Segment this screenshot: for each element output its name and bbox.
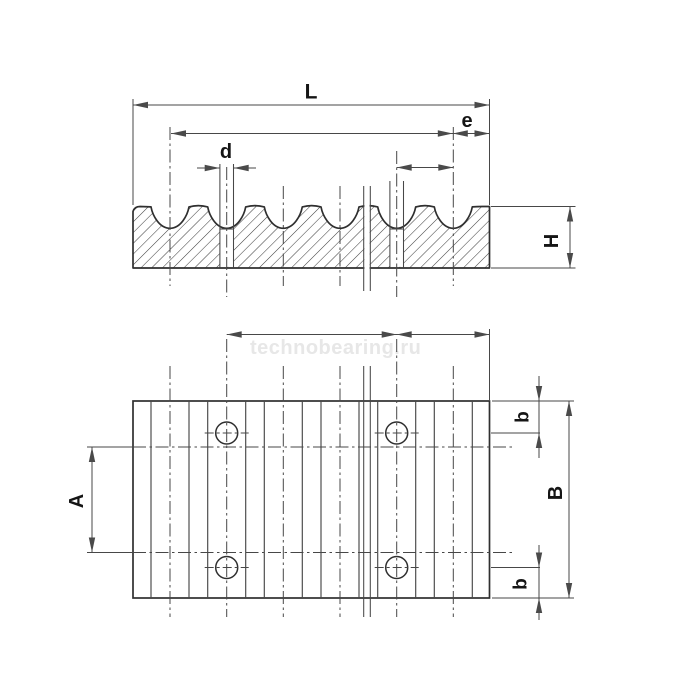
arrowhead	[536, 553, 542, 568]
dim-label-e: e	[461, 110, 472, 132]
arrowhead	[438, 164, 453, 170]
dim-label-H: H	[541, 234, 563, 248]
arrowhead	[89, 538, 95, 553]
belt-clamp-plate-drawing: LedHABbb	[0, 0, 700, 700]
arrowhead	[397, 164, 412, 170]
arrowhead	[566, 401, 572, 416]
section-view	[133, 127, 490, 297]
arrowhead	[567, 207, 573, 222]
plate-outline	[133, 401, 490, 598]
technical-drawing-page: technobearing.ru LedHABbb	[0, 0, 700, 700]
dim-label-d: d	[220, 141, 232, 163]
arrowhead	[536, 386, 542, 401]
dim-label-b_bottom: b	[511, 578, 532, 590]
break-gap	[364, 196, 369, 291]
arrowhead	[475, 130, 490, 136]
arrowhead	[438, 130, 453, 136]
arrowhead	[234, 165, 249, 171]
dim-label-b_top: b	[513, 411, 534, 423]
dim-label-A: A	[66, 494, 88, 508]
arrowhead	[475, 331, 490, 337]
arrowhead	[567, 253, 573, 268]
dim-label-L: L	[305, 81, 318, 104]
arrowhead	[205, 165, 220, 171]
arrowhead	[171, 130, 186, 136]
arrowhead	[227, 331, 242, 337]
arrowhead	[536, 433, 542, 448]
arrowhead	[536, 598, 542, 613]
arrowhead	[382, 331, 397, 337]
arrowhead	[475, 102, 490, 108]
dim-label-B: B	[545, 486, 567, 500]
arrowhead	[89, 447, 95, 462]
tooth-profile	[133, 206, 490, 268]
arrowhead	[133, 102, 148, 108]
arrowhead	[566, 583, 572, 598]
arrowhead	[397, 331, 412, 337]
plan-view	[87, 339, 513, 617]
